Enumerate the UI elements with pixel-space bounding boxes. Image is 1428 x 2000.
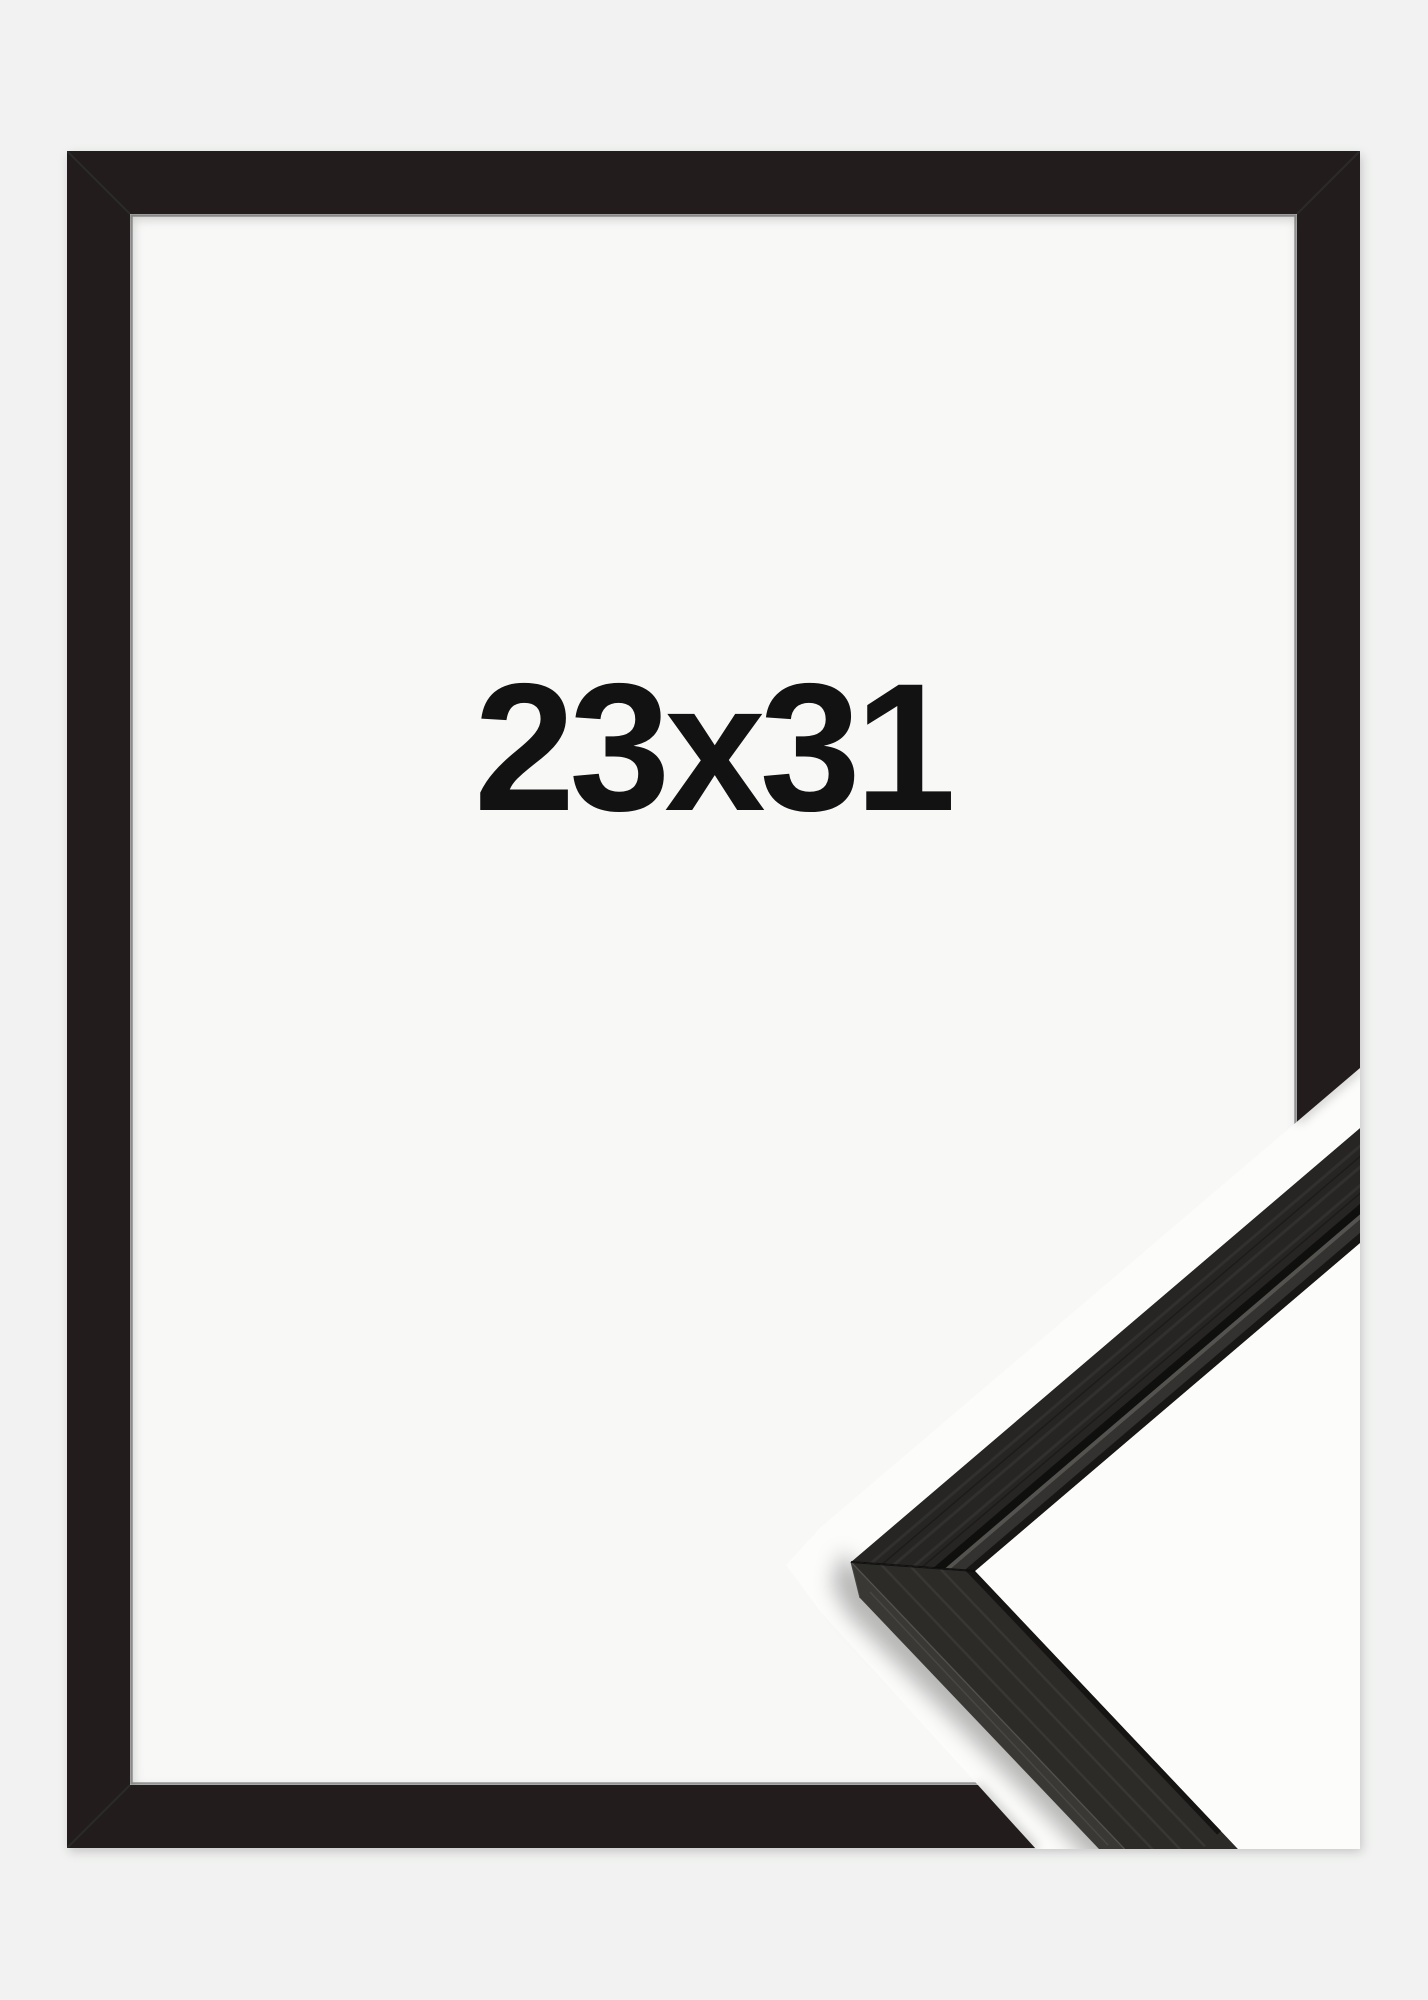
frame-size-label: 23x31	[474, 645, 952, 849]
product-image: 23x31	[0, 0, 1428, 2000]
frame-product-illustration: 23x31	[0, 0, 1428, 2000]
